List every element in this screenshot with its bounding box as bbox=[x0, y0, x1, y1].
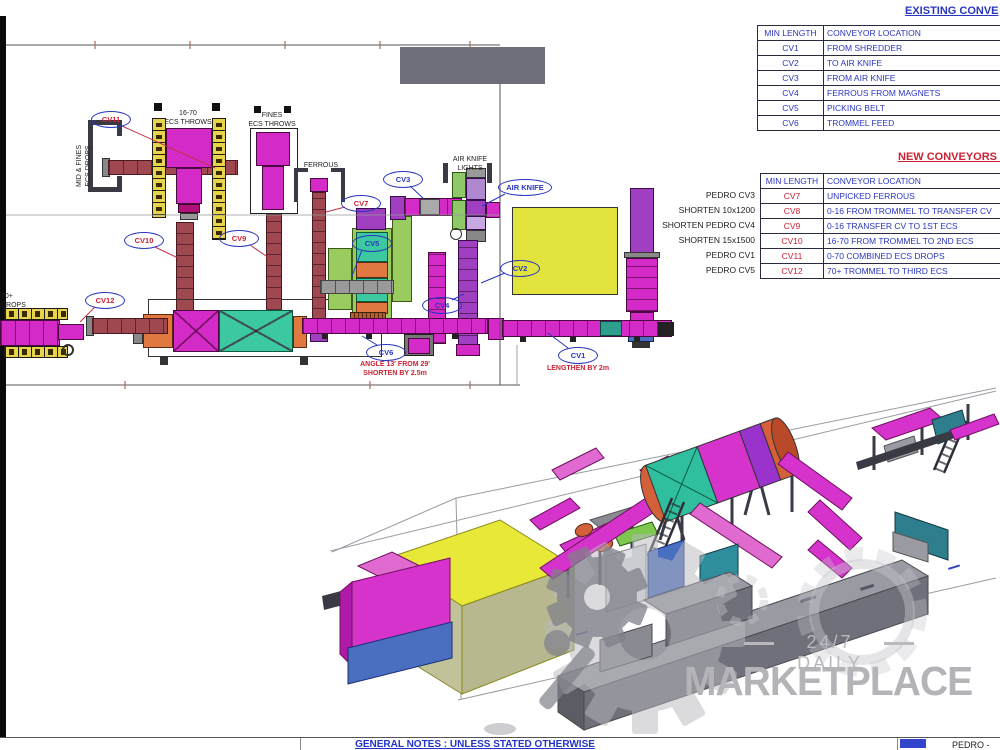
cv1-foot bbox=[520, 337, 526, 342]
titleblock-divider bbox=[897, 738, 898, 750]
cv6-note: ANGLE 13' FROM 29' SHORTEN BY 2.5m bbox=[330, 360, 460, 379]
ecs1-yellow-blocks-left bbox=[152, 118, 166, 218]
iso-perspective-lines bbox=[330, 388, 996, 700]
iso-masts bbox=[568, 404, 968, 598]
table-row: CV90-16 TRANSFER CV TO 1ST ECS bbox=[761, 219, 1000, 234]
table-row: CV1270+ TROMMEL TO THIRD ECS bbox=[761, 264, 1000, 279]
drops70-label: 70+ DROPS bbox=[1, 293, 35, 311]
cv6-drive-box bbox=[408, 338, 430, 354]
iso-station-lower bbox=[808, 500, 948, 578]
picking-belt-seg bbox=[356, 262, 388, 278]
callout-label: CV10 bbox=[135, 236, 154, 245]
ferrous-label: FERROUS bbox=[296, 162, 346, 171]
iso-wall-box bbox=[600, 624, 652, 672]
table-row: CV6TROMMEL FEED bbox=[758, 116, 1000, 131]
ecs1-foot bbox=[180, 213, 198, 220]
callout-cv7: CV7 bbox=[341, 195, 381, 212]
iso-ladders bbox=[648, 418, 966, 560]
cv12-conveyor bbox=[92, 318, 168, 334]
table-row: CV5PICKING BELT bbox=[758, 101, 1000, 116]
cv2-tail bbox=[456, 344, 480, 356]
cv6-foot bbox=[366, 334, 372, 339]
cv3-mid bbox=[420, 199, 440, 215]
new-conveyors-title: NEW CONVEYORS F bbox=[898, 151, 1000, 163]
airknife-green-block bbox=[452, 200, 466, 230]
ecs1-yellow-blocks-right bbox=[212, 118, 226, 240]
titleblock-strip: GENERAL NOTES : UNLESS STATED OTHERWISE … bbox=[0, 737, 1000, 750]
iso-drum bbox=[573, 521, 594, 538]
iso-truss bbox=[856, 416, 996, 470]
titleblock-divider bbox=[300, 738, 301, 750]
airknife-green-block bbox=[452, 172, 466, 198]
table-row: CV1016-70 FROM TROMMEL TO 2ND ECS bbox=[761, 234, 1000, 249]
table-row: CV1FROM SHREDDER bbox=[758, 41, 1000, 56]
iso-walkway-rail bbox=[360, 548, 540, 592]
iso-conveyor bbox=[560, 522, 618, 555]
callout-label: AIR KNIFE bbox=[506, 183, 544, 192]
watermark-daily-line-right bbox=[884, 642, 914, 645]
callout-cv11: CV11 bbox=[91, 111, 131, 128]
iso-walkway bbox=[590, 468, 770, 528]
note-row: PEDRO CV3 bbox=[640, 188, 755, 203]
iso-conveyor bbox=[552, 448, 604, 480]
callout-label: CV6 bbox=[379, 348, 394, 357]
callout-cv10: CV10 bbox=[124, 232, 164, 249]
cv7-head bbox=[310, 178, 328, 192]
iso-green-panel bbox=[614, 522, 658, 546]
ecs1-throws-label: 16-70 ECS THROWS bbox=[148, 110, 228, 128]
building-plan bbox=[512, 207, 618, 295]
table-row: MIN LENGTHCONVEYOR LOCATION bbox=[761, 174, 1000, 189]
plan-gray-box bbox=[400, 47, 545, 84]
cv1-tail-box bbox=[658, 322, 674, 336]
cv12-ecs-box bbox=[0, 320, 60, 346]
note-row: SHORTEN 15x1500 bbox=[640, 233, 755, 248]
trommel-magenta-section bbox=[173, 310, 219, 352]
callout-cv12: CV12 bbox=[85, 292, 125, 309]
table-row: CV80-16 FROM TROMMEL TO TRANSFER CV bbox=[761, 204, 1000, 219]
infeed-foot bbox=[632, 342, 650, 348]
existing-conveyors-title: EXISTING CONVE bbox=[905, 5, 999, 17]
callout-cv6: CV6 bbox=[366, 344, 406, 361]
trommel-leg bbox=[300, 356, 308, 365]
note-row: PEDRO CV1 bbox=[640, 248, 755, 263]
titleblock-right-text: PEDRO - bbox=[952, 740, 990, 750]
watermark-wrench bbox=[484, 630, 597, 735]
note-row: PEDRO CV5 bbox=[640, 263, 755, 278]
ecs2-throws-label: FINES ECS THROWS bbox=[240, 112, 304, 130]
iso-conveyor bbox=[778, 452, 852, 510]
cv12-yellow-blocks-bottom bbox=[4, 346, 68, 358]
callout-label: CV3 bbox=[396, 175, 411, 184]
airknife-stack bbox=[466, 178, 486, 200]
ferrous-bunker-wall bbox=[341, 168, 345, 202]
iso-trommel bbox=[634, 415, 805, 526]
titleblock-highlight bbox=[900, 739, 926, 748]
callout-label: CV9 bbox=[232, 234, 247, 243]
new-conveyors-notes: PEDRO CV3 SHORTEN 10x1200 SHORTEN PEDRO … bbox=[640, 188, 755, 278]
trommel-leg bbox=[160, 356, 168, 365]
callout-label: CV7 bbox=[354, 199, 369, 208]
callout-label: CV5 bbox=[365, 239, 380, 248]
callout-label: CV4 bbox=[435, 301, 450, 310]
iso-hopper-base bbox=[348, 622, 452, 684]
iso-stub-conveyor bbox=[322, 586, 362, 610]
cv6-conveyor bbox=[302, 318, 488, 334]
airknife-lights-label: AIR KNIFE LIGHTS bbox=[444, 156, 496, 174]
new-conveyors-table: MIN LENGTHCONVEYOR LOCATION CV7UNPICKED … bbox=[760, 173, 1000, 279]
callout-cv3: CV3 bbox=[383, 171, 423, 188]
iso-hopper bbox=[340, 552, 450, 666]
trommel-teal-section bbox=[219, 310, 293, 352]
iso-conveyor bbox=[950, 414, 999, 440]
iso-conveyor bbox=[640, 456, 676, 480]
ecs2-magnet bbox=[256, 132, 290, 166]
ecs2-body bbox=[262, 166, 284, 210]
sheet-left-border bbox=[0, 16, 6, 750]
callout-cv1: CV1 bbox=[558, 347, 598, 364]
iso-conveyor bbox=[690, 503, 782, 568]
iso-teal-box bbox=[700, 544, 738, 594]
ecs1-foot bbox=[178, 204, 200, 213]
callout-cv5: CV5 bbox=[352, 235, 392, 252]
picking-platform-right bbox=[392, 216, 412, 302]
iso-light-box bbox=[606, 544, 646, 612]
iso-infeed-conveyor bbox=[540, 492, 668, 579]
cv6-foot bbox=[452, 334, 458, 339]
mid-fines-drops-label: MID & FINES ECS DROPS bbox=[76, 136, 94, 196]
picking-platform-left bbox=[328, 248, 352, 310]
airknife-roller bbox=[450, 228, 462, 240]
table-row: MIN LENGTHCONVEYOR LOCATION bbox=[758, 26, 1000, 41]
airknife-box bbox=[486, 202, 500, 218]
ecs1-magnet bbox=[166, 128, 212, 168]
cv12-ext bbox=[58, 324, 84, 340]
iso-station-upper bbox=[872, 408, 968, 462]
iso-building bbox=[388, 520, 574, 694]
airknife-stack bbox=[466, 200, 486, 216]
callout-label: CV1 bbox=[571, 351, 586, 360]
airknife-stack bbox=[466, 216, 486, 230]
cv1-conveyor bbox=[502, 320, 672, 337]
callout-cv2: CV2 bbox=[500, 260, 540, 277]
table-row: CV3FROM AIR KNIFE bbox=[758, 71, 1000, 86]
watermark-gear-small bbox=[546, 546, 649, 649]
note-row: SHORTEN 10x1200 bbox=[640, 203, 755, 218]
picking-walkway bbox=[320, 280, 394, 294]
callout-label: CV11 bbox=[102, 115, 120, 124]
iso-wall-short bbox=[644, 572, 752, 646]
watermark-marketplace: MARKETPLACE bbox=[684, 658, 972, 705]
general-notes-text: GENERAL NOTES : UNLESS STATED OTHERWISE bbox=[345, 739, 605, 750]
bunker-wall bbox=[117, 176, 122, 192]
iso-blue-box bbox=[648, 540, 684, 598]
callout-airknife: AIR KNIFE bbox=[498, 179, 552, 196]
existing-conveyors-table: MIN LENGTHCONVEYOR LOCATION CV1FROM SHRE… bbox=[757, 25, 1000, 131]
cv1-note: LENGTHEN BY 2m bbox=[518, 364, 638, 373]
table-row: CV2TO AIR KNIFE bbox=[758, 56, 1000, 71]
cad-drawing-sheet: 16-70 ECS THROWS FINES ECS THROWS FERROU… bbox=[0, 0, 1000, 750]
cv7-conveyor bbox=[312, 192, 326, 332]
callout-label: CV2 bbox=[513, 264, 528, 273]
ferrous-bunker-wall bbox=[294, 168, 298, 202]
callout-cv4: CV4 bbox=[422, 297, 462, 314]
cv6-foot bbox=[322, 334, 328, 339]
table-row: CV7UNPICKED FERROUS bbox=[761, 189, 1000, 204]
watermark-daily-line-left bbox=[744, 642, 774, 645]
cv12-roller bbox=[62, 344, 74, 356]
cv1-foot bbox=[570, 337, 576, 342]
iso-drum bbox=[593, 536, 614, 553]
cv1-foot bbox=[634, 337, 640, 342]
callout-cv9: CV9 bbox=[219, 230, 259, 247]
callout-label: CV12 bbox=[96, 296, 115, 305]
ecs1-body bbox=[176, 168, 202, 204]
iso-stub-head bbox=[352, 579, 371, 595]
note-row: SHORTEN PEDRO CV4 bbox=[640, 218, 755, 233]
table-row: CV110-70 COMBINED ECS DROPS bbox=[761, 249, 1000, 264]
table-row: CV4FERROUS FROM MAGNETS bbox=[758, 86, 1000, 101]
iso-tiny-labels bbox=[576, 564, 960, 635]
cv1-seg bbox=[600, 321, 622, 336]
iso-conveyor bbox=[530, 498, 580, 530]
